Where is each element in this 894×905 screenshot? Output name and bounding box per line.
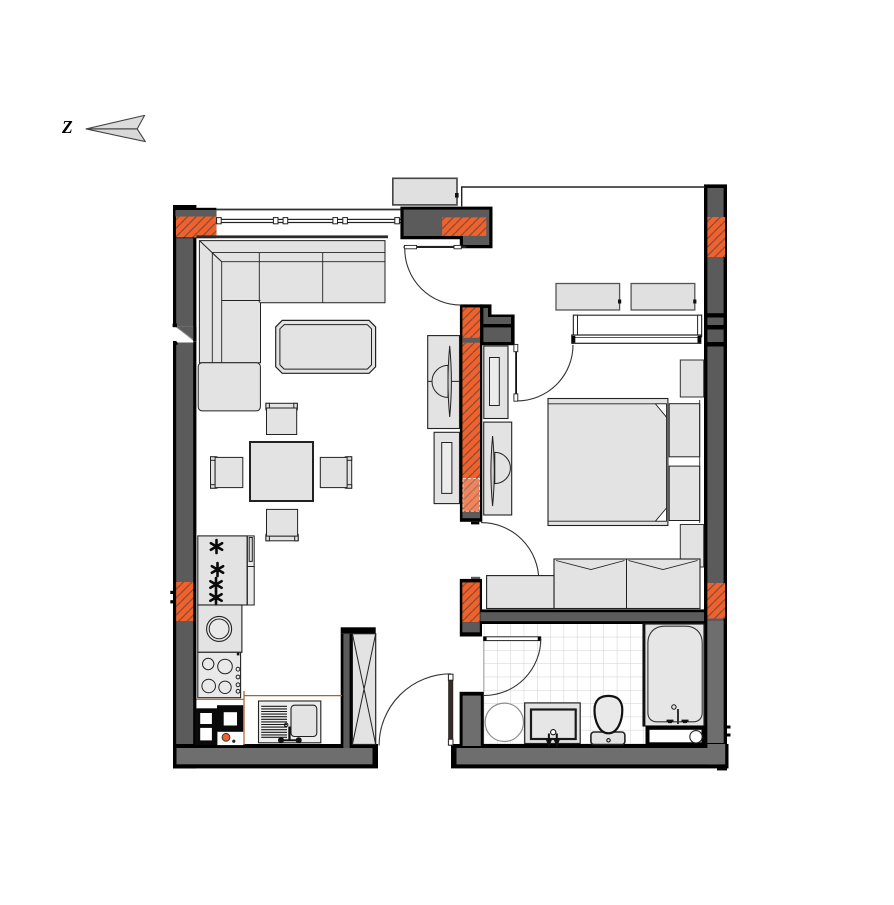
- svg-text:Z: Z: [61, 117, 73, 137]
